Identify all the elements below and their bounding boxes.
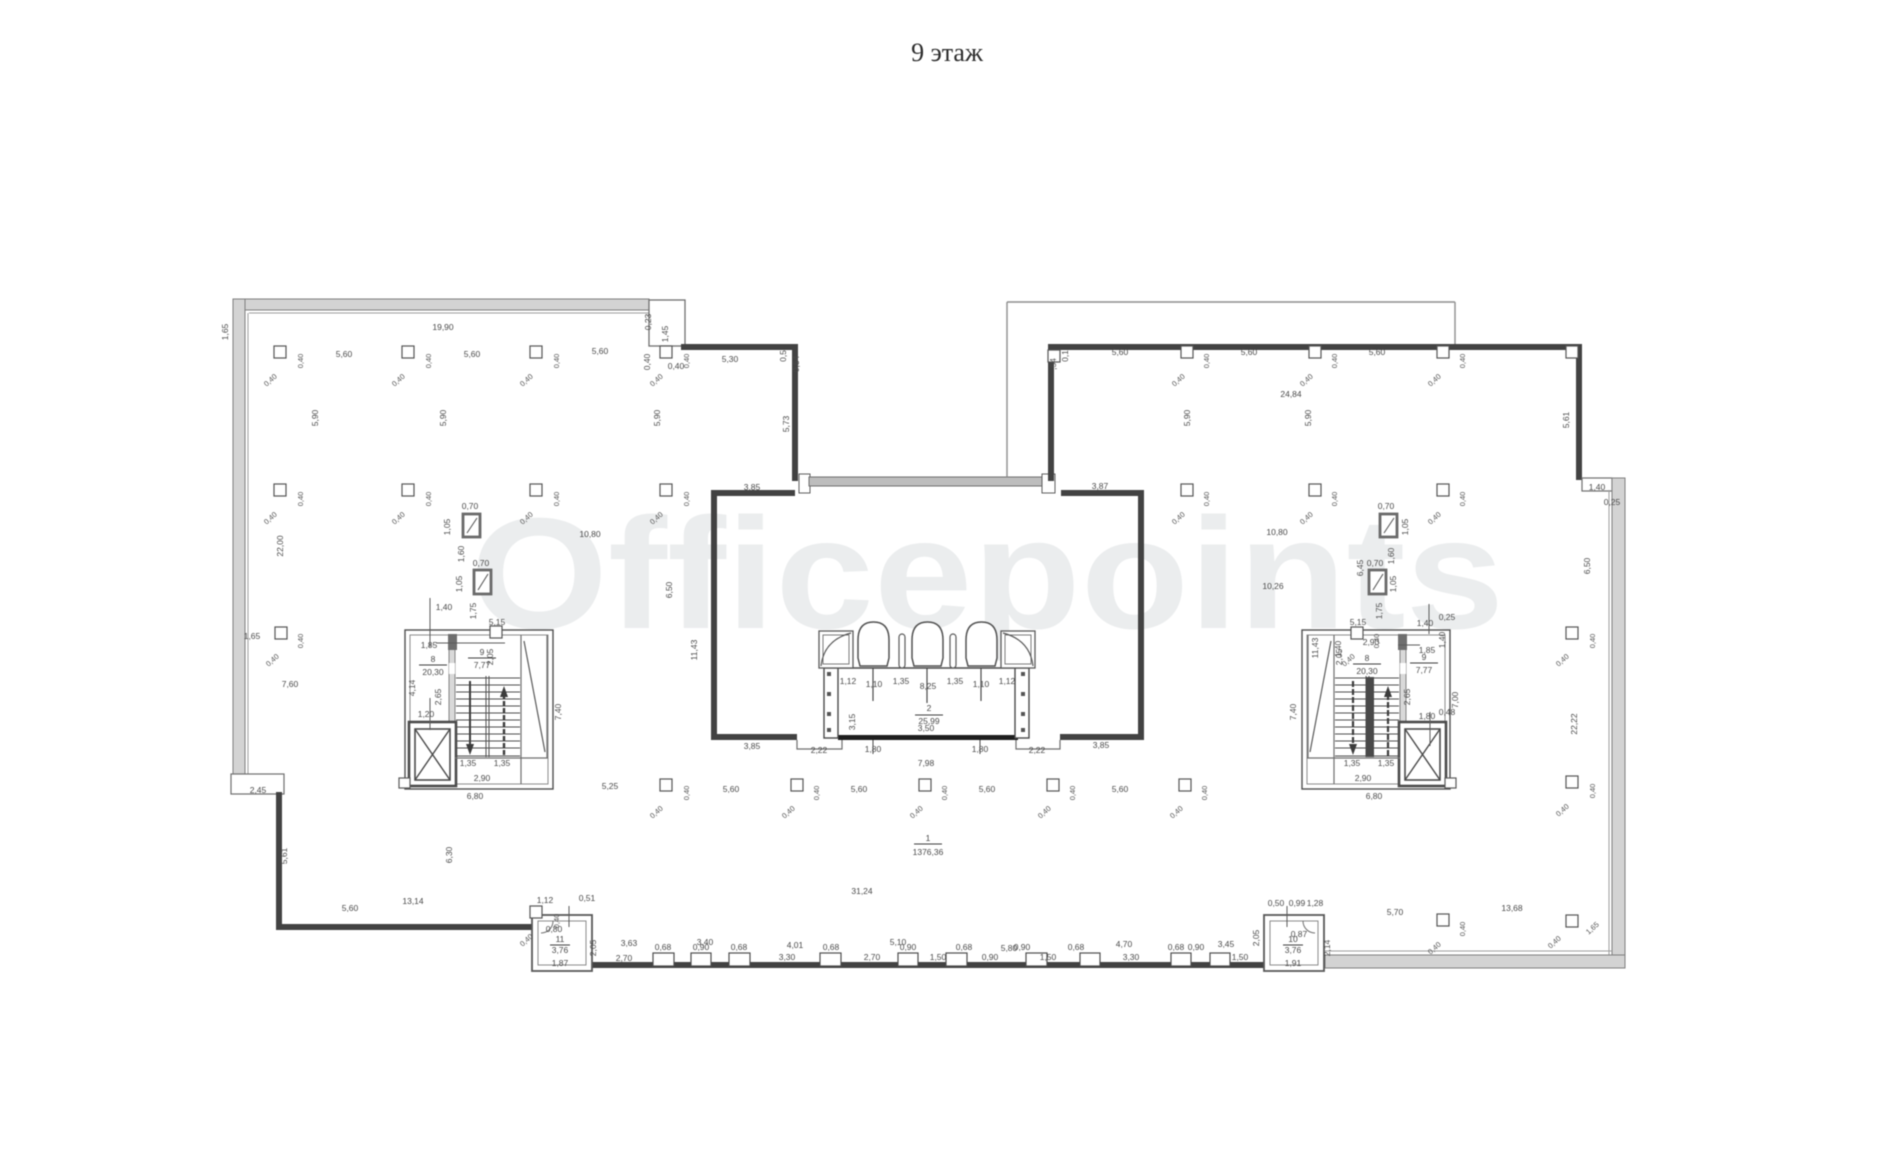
svg-text:0,68: 0,68: [1068, 942, 1085, 952]
svg-text:2,14: 2,14: [1322, 939, 1332, 956]
svg-text:0,70: 0,70: [462, 501, 479, 511]
svg-text:1,35: 1,35: [893, 676, 910, 686]
svg-text:1,10: 1,10: [973, 679, 990, 689]
svg-text:5,60: 5,60: [1369, 347, 1386, 357]
svg-text:2,05: 2,05: [588, 939, 598, 956]
svg-text:25,99: 25,99: [918, 716, 940, 726]
svg-text:13,68: 13,68: [1501, 903, 1523, 913]
svg-text:0,68: 0,68: [1168, 942, 1185, 952]
svg-text:31,24: 31,24: [851, 886, 873, 896]
svg-text:11: 11: [556, 934, 565, 944]
svg-text:0,51: 0,51: [579, 893, 596, 903]
svg-text:1,20: 1,20: [418, 709, 435, 719]
svg-text:5,60: 5,60: [979, 784, 996, 794]
svg-text:0,40: 0,40: [552, 354, 561, 369]
svg-text:0,68: 0,68: [823, 942, 840, 952]
svg-text:3,30: 3,30: [1123, 952, 1140, 962]
svg-text:0,70: 0,70: [1378, 501, 1395, 511]
svg-text:1,80: 1,80: [1419, 711, 1436, 721]
svg-text:1,35: 1,35: [1378, 758, 1395, 768]
svg-text:1,40: 1,40: [1417, 618, 1434, 628]
svg-text:1,50: 1,50: [1040, 952, 1057, 962]
svg-text:0,68: 0,68: [731, 942, 748, 952]
svg-text:5,90: 5,90: [310, 409, 320, 426]
svg-text:20,30: 20,30: [422, 667, 444, 677]
svg-text:10: 10: [1288, 934, 1298, 944]
svg-text:10,80: 10,80: [1266, 527, 1288, 537]
svg-text:0,40: 0,40: [296, 634, 305, 649]
svg-text:1,87: 1,87: [552, 958, 569, 968]
svg-text:2,05: 2,05: [1251, 929, 1261, 946]
svg-text:6,80: 6,80: [1366, 791, 1383, 801]
svg-text:1,75: 1,75: [1374, 602, 1384, 619]
svg-text:0,40: 0,40: [1372, 634, 1381, 649]
svg-text:3,76: 3,76: [552, 945, 569, 955]
svg-text:0,40: 0,40: [1202, 492, 1211, 507]
svg-text:3,76: 3,76: [1285, 945, 1302, 955]
svg-text:3,85: 3,85: [744, 741, 761, 751]
svg-text:0,99: 0,99: [1289, 898, 1306, 908]
svg-text:11,43: 11,43: [1310, 637, 1320, 658]
svg-text:1,50: 1,50: [1232, 952, 1249, 962]
svg-text:4,70: 4,70: [1116, 939, 1133, 949]
svg-text:1376,36: 1376,36: [913, 847, 944, 857]
svg-text:0,40: 0,40: [424, 492, 433, 507]
svg-text:5,60: 5,60: [464, 349, 481, 359]
svg-text:5,61: 5,61: [279, 847, 289, 864]
svg-text:10,26: 10,26: [1262, 581, 1284, 591]
svg-text:7,77: 7,77: [1416, 665, 1433, 675]
svg-text:0,5: 0,5: [778, 350, 788, 362]
svg-text:1,05: 1,05: [442, 518, 452, 535]
svg-text:0,40: 0,40: [1458, 492, 1467, 507]
svg-text:1,05: 1,05: [1388, 575, 1398, 592]
svg-text:0,90: 0,90: [900, 942, 917, 952]
svg-text:0,50: 0,50: [1268, 898, 1285, 908]
svg-text:5,60: 5,60: [723, 784, 740, 794]
svg-text:7,00: 7,00: [1450, 691, 1460, 708]
svg-text:0,40: 0,40: [296, 492, 305, 507]
svg-text:0,40: 0,40: [940, 786, 949, 801]
svg-text:7,40: 7,40: [553, 703, 563, 720]
svg-text:0,68: 0,68: [655, 942, 672, 952]
svg-text:0,90: 0,90: [1188, 942, 1205, 952]
svg-text:1,80: 1,80: [972, 744, 989, 754]
svg-text:0,40: 0,40: [552, 492, 561, 507]
svg-text:1,35: 1,35: [494, 758, 511, 768]
svg-text:1,65: 1,65: [220, 323, 230, 340]
svg-text:0,40: 0,40: [1458, 922, 1467, 937]
svg-text:1,60: 1,60: [456, 545, 466, 562]
svg-text:6,50: 6,50: [1582, 557, 1592, 574]
svg-text:2,45: 2,45: [250, 785, 267, 795]
svg-text:2,90: 2,90: [1355, 773, 1372, 783]
svg-text:0,90: 0,90: [1014, 942, 1031, 952]
svg-text:0,40: 0,40: [1458, 354, 1467, 369]
svg-text:5,25: 5,25: [602, 781, 619, 791]
svg-text:3,85: 3,85: [1093, 740, 1110, 750]
svg-text:1,05: 1,05: [1400, 518, 1410, 535]
svg-text:0,70: 0,70: [473, 558, 490, 568]
svg-text:,54: ,54: [1048, 358, 1058, 370]
svg-text:20,30: 20,30: [1356, 666, 1378, 676]
svg-text:2,65: 2,65: [1402, 688, 1412, 705]
svg-text:8: 8: [431, 654, 436, 664]
svg-text:0,70: 0,70: [1367, 558, 1384, 568]
svg-text:10,80: 10,80: [579, 529, 601, 539]
svg-text:4,14: 4,14: [407, 679, 417, 696]
svg-text:0,40: 0,40: [682, 354, 691, 369]
svg-text:9: 9: [1422, 652, 1427, 662]
svg-text:5,60: 5,60: [336, 349, 353, 359]
svg-text:13,14: 13,14: [402, 896, 424, 906]
svg-text:1,65: 1,65: [244, 631, 261, 641]
svg-text:0,40: 0,40: [1588, 634, 1597, 649]
svg-text:2,70: 2,70: [864, 952, 881, 962]
svg-text:0,40: 0,40: [1330, 492, 1339, 507]
svg-text:1,40: 1,40: [1589, 482, 1606, 492]
svg-text:19,90: 19,90: [432, 322, 454, 332]
svg-text:1,05: 1,05: [454, 575, 464, 592]
svg-text:3,30: 3,30: [779, 952, 796, 962]
svg-text:0,40: 0,40: [1588, 784, 1597, 799]
svg-text:1,40: 1,40: [436, 602, 453, 612]
svg-text:1,35: 1,35: [460, 758, 477, 768]
svg-text:8,25: 8,25: [920, 681, 937, 691]
svg-text:5,70: 5,70: [1387, 907, 1404, 917]
svg-text:22,00: 22,00: [275, 535, 285, 557]
svg-text:6,50: 6,50: [664, 581, 674, 598]
svg-text:5,90: 5,90: [652, 409, 662, 426]
svg-text:8: 8: [1365, 653, 1370, 663]
svg-text:1,50: 1,50: [930, 952, 947, 962]
svg-text:5,90: 5,90: [1303, 409, 1313, 426]
svg-text:0,40: 0,40: [1200, 786, 1209, 801]
svg-text:0,40: 0,40: [682, 786, 691, 801]
svg-text:5,60: 5,60: [592, 346, 609, 356]
svg-text:0,90: 0,90: [982, 952, 999, 962]
svg-text:1,85: 1,85: [421, 640, 438, 650]
svg-text:2,05: 2,05: [485, 648, 495, 665]
svg-text:1: 1: [926, 833, 931, 843]
svg-text:0,23: 0,23: [643, 313, 653, 330]
svg-text:0,40: 0,40: [812, 786, 821, 801]
svg-text:3,63: 3,63: [621, 938, 638, 948]
svg-text:7,98: 7,98: [918, 758, 935, 768]
svg-text:0,40: 0,40: [642, 353, 652, 370]
svg-text:1,28: 1,28: [1307, 898, 1324, 908]
svg-text:0,40: 0,40: [1330, 354, 1339, 369]
svg-text:9: 9: [480, 647, 485, 657]
svg-text:5,90: 5,90: [1182, 409, 1192, 426]
svg-text:7,40: 7,40: [1288, 703, 1298, 720]
svg-text:9 этаж: 9 этаж: [911, 38, 984, 67]
svg-text:0,40: 0,40: [682, 492, 691, 507]
svg-text:3,45: 3,45: [1218, 939, 1235, 949]
svg-text:1,12: 1,12: [999, 676, 1016, 686]
svg-text:0,40: 0,40: [424, 354, 433, 369]
svg-text:1,35: 1,35: [1344, 758, 1361, 768]
svg-text:1,40: 1,40: [1437, 631, 1447, 648]
svg-text:2,65: 2,65: [433, 688, 443, 705]
svg-text:6,80: 6,80: [467, 791, 484, 801]
svg-text:5,60: 5,60: [1241, 347, 1258, 357]
svg-text:2,22: 2,22: [1029, 745, 1046, 755]
svg-text:1,40: 1,40: [1333, 640, 1343, 657]
svg-text:3,87: 3,87: [1092, 481, 1109, 491]
svg-text:3,15: 3,15: [847, 713, 857, 730]
svg-text:0,40: 0,40: [552, 914, 561, 929]
svg-text:5,61: 5,61: [1561, 411, 1571, 428]
svg-text:4,01: 4,01: [787, 940, 804, 950]
svg-text:0,25: 0,25: [1439, 612, 1456, 622]
svg-text:1,75: 1,75: [468, 602, 478, 619]
svg-text:5,60: 5,60: [851, 784, 868, 794]
svg-text:1,80: 1,80: [865, 744, 882, 754]
svg-text:7,60: 7,60: [282, 679, 299, 689]
svg-text:1,12: 1,12: [840, 676, 857, 686]
svg-text:0,40: 0,40: [1068, 786, 1077, 801]
svg-text:1,35: 1,35: [947, 676, 964, 686]
svg-text:0,54: 0,54: [791, 355, 801, 372]
svg-text:5,15: 5,15: [489, 617, 506, 627]
svg-text:1,91: 1,91: [1285, 958, 1302, 968]
svg-text:5,60: 5,60: [1112, 784, 1129, 794]
svg-text:2,70: 2,70: [616, 953, 633, 963]
svg-text:5,30: 5,30: [722, 354, 739, 364]
svg-text:1,60: 1,60: [1386, 547, 1396, 564]
svg-text:5,60: 5,60: [342, 903, 359, 913]
svg-text:1,45: 1,45: [660, 325, 670, 342]
svg-text:2,22: 2,22: [811, 745, 828, 755]
svg-text:0,90: 0,90: [693, 942, 710, 952]
svg-text:0,68: 0,68: [956, 942, 973, 952]
svg-text:0,25: 0,25: [1604, 497, 1621, 507]
svg-text:5,90: 5,90: [438, 409, 448, 426]
svg-text:0,40: 0,40: [296, 354, 305, 369]
svg-text:22,22: 22,22: [1569, 713, 1579, 735]
svg-text:3,85: 3,85: [744, 482, 761, 492]
svg-text:5,60: 5,60: [1112, 347, 1129, 357]
svg-text:2: 2: [927, 703, 932, 713]
svg-text:5,73: 5,73: [781, 415, 791, 432]
svg-text:24,84: 24,84: [1280, 389, 1302, 399]
svg-text:5,15: 5,15: [1350, 617, 1367, 627]
svg-text:6,45: 6,45: [1355, 559, 1365, 576]
svg-text:6,30: 6,30: [444, 846, 454, 863]
svg-text:11,43: 11,43: [689, 639, 699, 660]
svg-text:2,90: 2,90: [474, 773, 491, 783]
svg-text:1,12: 1,12: [537, 895, 554, 905]
svg-text:1,10: 1,10: [866, 679, 883, 689]
svg-text:0,40: 0,40: [1202, 354, 1211, 369]
svg-text:0,1: 0,1: [1060, 350, 1070, 362]
